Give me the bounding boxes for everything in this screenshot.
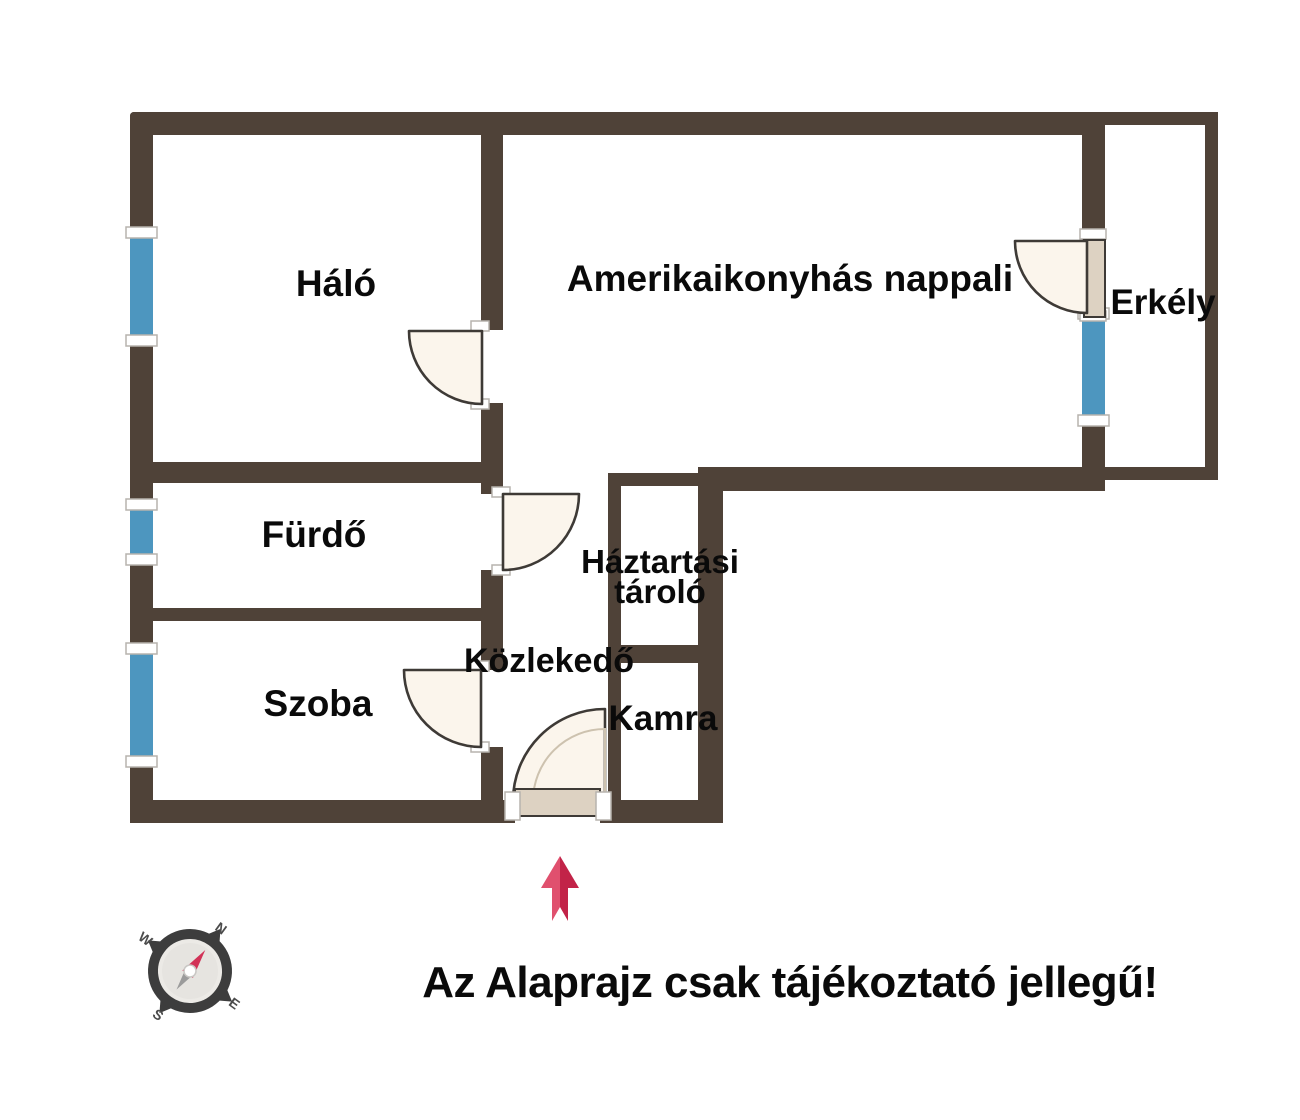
window-erkely bbox=[1078, 308, 1109, 426]
room-label-erkely: Erkély bbox=[1110, 283, 1216, 322]
arrow-right-half bbox=[560, 856, 579, 921]
door-furdo bbox=[492, 487, 579, 575]
door-halo bbox=[409, 321, 489, 409]
wall-bottom-left bbox=[130, 800, 515, 823]
door-leaf bbox=[515, 789, 600, 816]
arrow-left-half bbox=[541, 856, 560, 921]
wall-balcony-bottom bbox=[1105, 467, 1218, 480]
door-swing-arc bbox=[404, 670, 481, 747]
room-label-kozlekedo: Közlekedő bbox=[464, 642, 634, 680]
compass-icon: N E S W bbox=[104, 885, 274, 1056]
door-erkely bbox=[1015, 229, 1106, 321]
window-glass bbox=[130, 508, 153, 556]
door-hinge bbox=[505, 792, 520, 820]
room-label-nappali: Amerikaikonyhás nappali bbox=[567, 258, 1013, 299]
disclaimer-text: Az Alaprajz csak tájékoztató jellegű! bbox=[422, 958, 1157, 1007]
window-furdo bbox=[126, 499, 157, 565]
wall-halo-bottom bbox=[130, 462, 503, 483]
door-hinge bbox=[1080, 229, 1106, 239]
window-glass bbox=[1082, 317, 1105, 417]
window-szoba bbox=[126, 643, 157, 767]
wall-balcony-top bbox=[1105, 112, 1218, 125]
window-glass bbox=[130, 652, 153, 758]
wall-kamra-right bbox=[698, 467, 723, 823]
room-labels: Háló Amerikaikonyhás nappali Erkély Fürd… bbox=[262, 258, 1216, 738]
window-halo bbox=[126, 227, 157, 346]
door-swing-arc bbox=[1015, 241, 1087, 313]
wall-storage-top bbox=[608, 473, 698, 486]
door-hinge bbox=[471, 321, 489, 331]
floorplan-canvas: Háló Amerikaikonyhás nappali Erkély Fürd… bbox=[0, 0, 1300, 1120]
door-entrance bbox=[505, 709, 611, 820]
window-sill bbox=[126, 227, 157, 238]
window-sill bbox=[126, 756, 157, 767]
compass-label-south: S bbox=[150, 1005, 167, 1023]
window-sill bbox=[126, 643, 157, 654]
room-label-kamra: Kamra bbox=[609, 699, 718, 738]
door-swing-arc bbox=[513, 709, 605, 801]
room-label-halo: Háló bbox=[296, 263, 376, 304]
window-sill bbox=[126, 499, 157, 510]
wall-center-lower bbox=[481, 747, 503, 823]
window-sill bbox=[1078, 415, 1109, 426]
door-hinge bbox=[596, 792, 611, 820]
wall-top bbox=[130, 112, 1105, 135]
floorplan-drawing: Háló Amerikaikonyhás nappali Erkély Fürd… bbox=[0, 0, 1300, 1120]
entrance-arrow-icon bbox=[541, 856, 579, 921]
doors bbox=[404, 229, 1106, 820]
window-glass bbox=[130, 236, 153, 338]
door-swing-arc bbox=[409, 331, 482, 404]
room-label-furdo: Fürdő bbox=[262, 514, 367, 555]
wall-furdo-szoba-divider bbox=[130, 608, 503, 621]
wall-storage-left bbox=[608, 473, 621, 800]
room-label-szoba: Szoba bbox=[264, 683, 373, 724]
wall-center-upper bbox=[481, 112, 503, 330]
door-swing-arc bbox=[503, 494, 579, 570]
room-label-haztartasi-line2: tároló bbox=[614, 573, 706, 610]
wall-nappali-bottom bbox=[698, 467, 1105, 491]
window-sill bbox=[126, 335, 157, 346]
window-sill bbox=[126, 554, 157, 565]
